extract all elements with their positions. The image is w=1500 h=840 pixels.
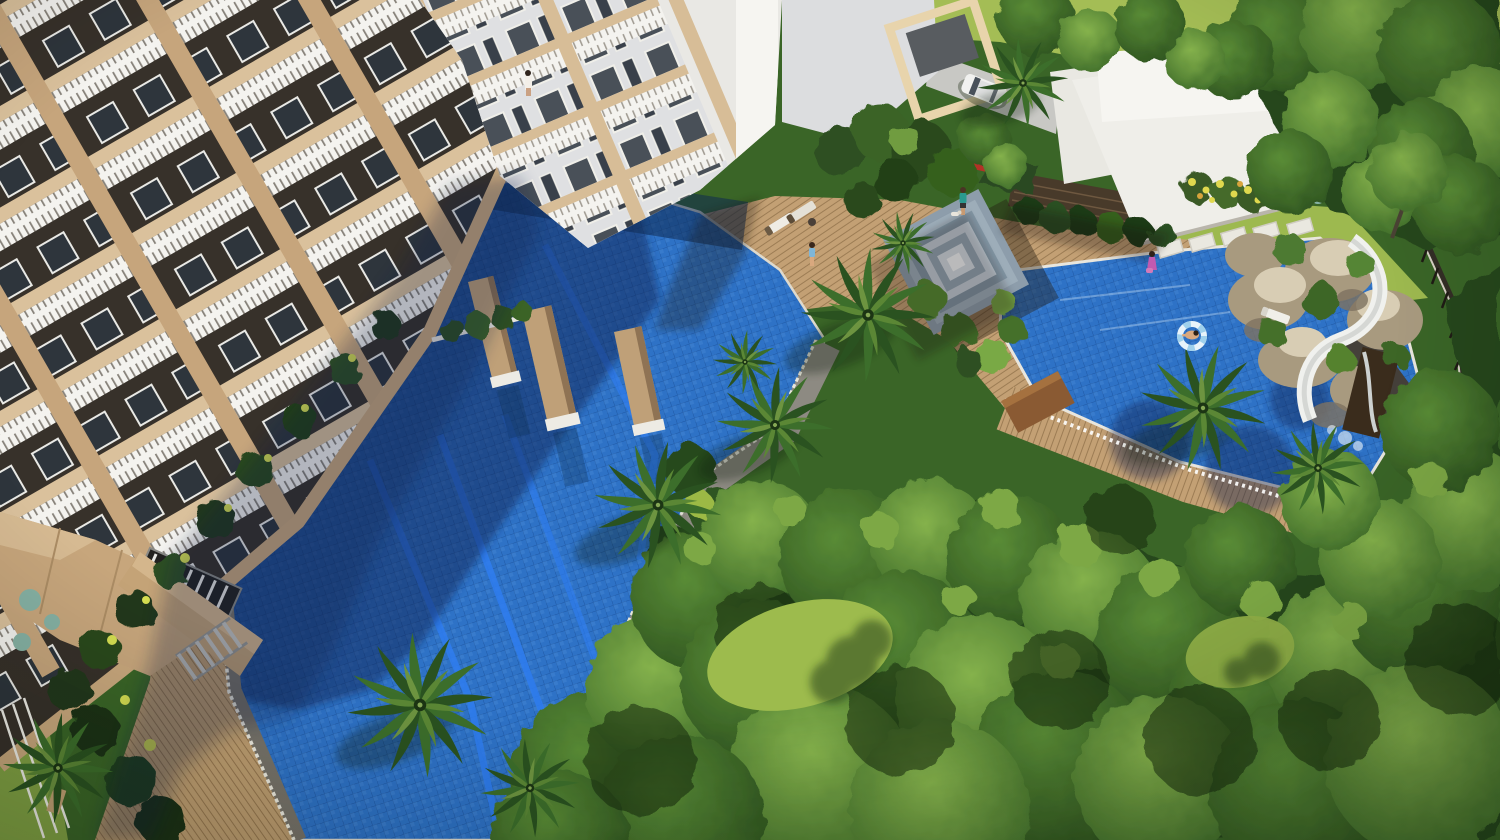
aerial-render-scene (0, 0, 1500, 840)
vignette (0, 0, 1500, 840)
render-canvas (0, 0, 1500, 840)
